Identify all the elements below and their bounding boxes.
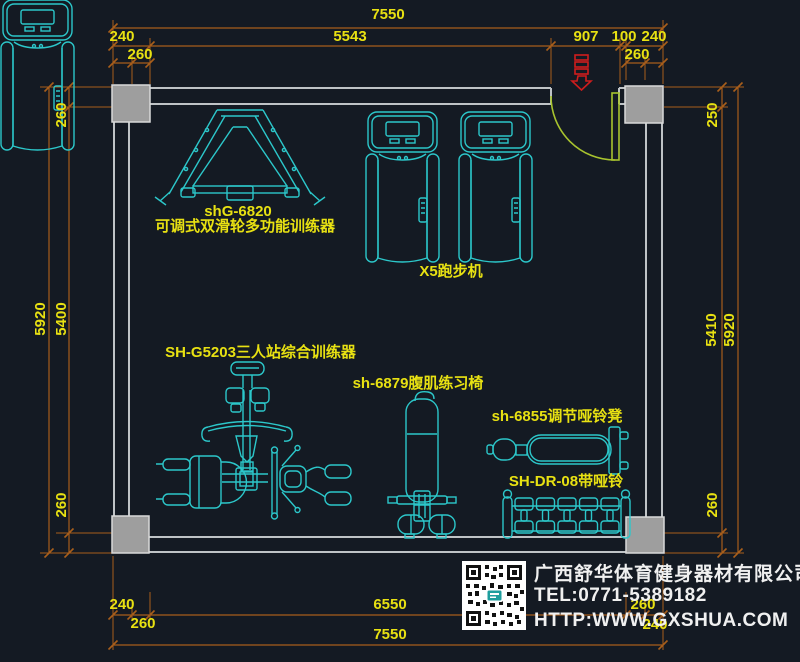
- dim-top-240-left: 240: [92, 29, 152, 45]
- floor-plan-canvas: 7550 240 5543 907 100 240 260 260 5920 5…: [0, 0, 800, 662]
- dim-top-total: 7550: [358, 7, 418, 23]
- door-swing: [551, 93, 619, 160]
- entry-marker-icon: [572, 55, 591, 90]
- dim-right-250-top: 250: [705, 80, 721, 150]
- dim-left-260-bottom: 260: [54, 470, 70, 540]
- label-multi-station: SH-G5203三人站综合训练器: [158, 345, 363, 360]
- dim-bottom-260-left: 260: [113, 616, 173, 632]
- qr-code-pattern: [462, 561, 526, 630]
- dim-bottom-total: 7550: [360, 627, 420, 643]
- dim-top-260-right: 260: [607, 47, 667, 63]
- dim-bottom-6550: 6550: [360, 597, 420, 613]
- dim-top-240-right: 240: [624, 29, 684, 45]
- label-ab-bench: sh-6879腹肌练习椅: [343, 376, 493, 391]
- column-bottom-right: [626, 517, 664, 553]
- dim-right-inner: 5410: [704, 295, 720, 365]
- door-leaf: [612, 93, 619, 160]
- dim-bottom-240-left: 240: [92, 597, 152, 613]
- ab-bench: [388, 392, 456, 538]
- door-arc: [551, 96, 615, 160]
- label-dumbbell-rack: SH-DR-08带哑铃: [492, 474, 640, 489]
- dim-left-260-top: 260: [54, 80, 70, 150]
- company-website: HTTP:WWW.GXSHUA.COM: [534, 610, 788, 632]
- dumbbell-rack: [503, 490, 630, 538]
- dim-top-5543: 5543: [320, 29, 380, 45]
- dim-right-outer: 5920: [722, 295, 738, 365]
- dim-top-260-left: 260: [110, 47, 170, 63]
- dim-left-inner: 5400: [54, 284, 70, 354]
- column-top-left: [112, 85, 150, 122]
- qr-code: [462, 561, 526, 630]
- company-name: 广西舒华体育健身器材有限公司: [534, 559, 800, 586]
- dim-left-outer: 5920: [33, 284, 49, 354]
- multi-station-trainer: [156, 362, 351, 519]
- label-treadmill: X5跑步机: [391, 264, 511, 279]
- dim-right-260-bottom: 260: [705, 470, 721, 540]
- label-adjustable-bench: sh-6855调节哑铃凳: [481, 409, 633, 424]
- column-bottom-left: [112, 516, 149, 553]
- label-pulley-trainer-model: shG-6820: [178, 204, 298, 219]
- label-pulley-trainer-name: 可调式双滑轮多功能训练器: [150, 219, 340, 234]
- adjustable-bench: [487, 427, 628, 474]
- company-phone: TEL:0771-5389182: [534, 585, 707, 607]
- qr-center-logo: [486, 589, 503, 602]
- pulley-trainer: [155, 110, 325, 205]
- column-top-right: [625, 86, 663, 123]
- treadmill: [459, 112, 532, 262]
- treadmill: [366, 112, 439, 262]
